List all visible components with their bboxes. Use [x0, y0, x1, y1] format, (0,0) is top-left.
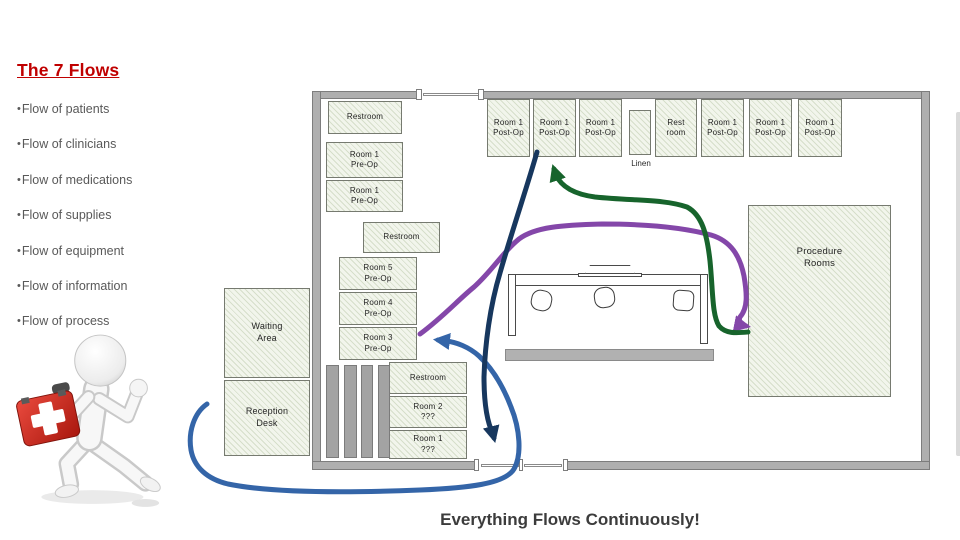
figure-shadow-small [132, 499, 159, 507]
room-room4-preop: Room 4 Pre-Op [339, 292, 417, 325]
wall-bottom-right [566, 461, 930, 470]
pillar-2 [344, 365, 357, 458]
bullet-text: Flow of process [22, 314, 110, 328]
room-room1-postop-6: Room 1 Post-Op [798, 99, 842, 157]
bullet-text: Flow of medications [22, 173, 132, 187]
bullet-marker: • [17, 315, 21, 327]
bottom-door-leaf-2 [524, 464, 562, 467]
room-label: Room 1 Post-Op [755, 118, 786, 139]
room-label: Room 4 Pre-Op [363, 298, 392, 319]
top-door-jamb-right [478, 89, 484, 100]
room-restroom-bottom: Restroom [389, 362, 467, 394]
slide-edge-strip [956, 112, 960, 456]
room-restroom-mid: Restroom [363, 222, 440, 253]
nurses-station-right-leg [700, 274, 708, 344]
room-room3-preop: Room 3 Pre-Op [339, 327, 417, 360]
room-label: Room 1 Post-Op [539, 118, 570, 139]
bullet-item-1: •Flow of clinicians [17, 137, 132, 151]
bottom-door-jamb-right [563, 459, 568, 471]
room-room1-postop-1: Room 1 Post-Op [487, 99, 530, 157]
room-restroom-top-right: Rest room [655, 99, 697, 157]
bullet-text: Flow of clinicians [22, 137, 116, 151]
room-label: Room 1 Post-Op [805, 118, 836, 139]
bullet-item-0: •Flow of patients [17, 102, 132, 116]
figure-head [75, 335, 126, 386]
room-label: Room 1 Post-Op [707, 118, 738, 139]
room-label: Room 2 ??? [413, 402, 442, 423]
room-label: Restroom [347, 112, 383, 122]
bullet-text: Flow of supplies [22, 208, 112, 222]
room-room1-preop-b: Room 1 Pre-Op [326, 180, 403, 212]
room-label: Room 5 Pre-Op [363, 263, 392, 284]
room-procedure-rooms: Procedure Rooms [748, 205, 891, 397]
wall-left [312, 91, 321, 469]
room-room1-preop-a: Room 1 Pre-Op [326, 142, 403, 178]
room-label: Waiting Area [251, 321, 282, 344]
bottom-door-jamb-left [474, 459, 479, 471]
bullet-text: Flow of information [22, 279, 128, 293]
room-label: Room 1 Post-Op [585, 118, 616, 139]
room-label: Room 1 Post-Op [493, 118, 524, 139]
monitor-icon [585, 265, 635, 274]
top-door-jamb-left [416, 89, 422, 100]
room-room1-postop-4: Room 1 Post-Op [701, 99, 744, 157]
room-room1-unknown: Room 1 ??? [389, 430, 467, 459]
wall-top [312, 91, 930, 99]
bullet-text: Flow of equipment [22, 244, 124, 258]
bottom-door-leaf-1 [481, 464, 519, 467]
room-label: Restroom [383, 232, 419, 242]
room-room1-postop-5: Room 1 Post-Op [749, 99, 792, 157]
flow-procedure-to-postop [554, 169, 748, 333]
wall-bottom-left [312, 461, 479, 470]
bullet-item-3: •Flow of supplies [17, 208, 132, 222]
chair-3 [672, 289, 694, 311]
room-room1-postop-2: Room 1 Post-Op [533, 99, 576, 157]
room-label: Procedure Rooms [797, 206, 843, 271]
room-reception-desk: Reception Desk [224, 380, 310, 456]
chair-2 [593, 286, 617, 310]
room-label: Rest room [666, 118, 685, 139]
bullet-marker: • [17, 174, 21, 186]
bullet-item-6: •Flow of process [17, 314, 132, 328]
bullet-marker: • [17, 245, 21, 257]
page-title: The 7 Flows [17, 60, 119, 81]
room-restroom-top-left: Restroom [328, 101, 402, 134]
bullet-list: •Flow of patients•Flow of clinicians•Flo… [17, 102, 132, 329]
caption: Everything Flows Continuously! [330, 510, 810, 530]
slide: The 7 Flows •Flow of patients•Flow of cl… [0, 0, 960, 540]
wall-right [921, 91, 930, 470]
bullet-item-2: •Flow of medications [17, 173, 132, 187]
bench [505, 349, 714, 361]
room-label: Restroom [410, 373, 446, 383]
bullet-item-5: •Flow of information [17, 279, 132, 293]
first-aid-kit-icon [14, 381, 81, 447]
room-label: Room 3 Pre-Op [363, 333, 392, 354]
room-room2-unknown: Room 2 ??? [389, 396, 467, 428]
room-waiting-area: Waiting Area [224, 288, 310, 378]
pillar-1 [326, 365, 339, 458]
running-medic-illustration [6, 328, 168, 510]
bullet-marker: • [17, 209, 21, 221]
bullet-marker: • [17, 103, 21, 115]
linen-label: Linen [625, 159, 657, 168]
room-room1-postop-3: Room 1 Post-Op [579, 99, 622, 157]
room-label: Room 1 ??? [413, 434, 442, 455]
bullet-marker: • [17, 280, 21, 292]
bullet-marker: • [17, 138, 21, 150]
room-label: Reception Desk [246, 406, 288, 429]
room-label: Room 1 Pre-Op [350, 186, 379, 207]
nurses-station-left-leg [508, 274, 516, 336]
pillar-4 [378, 365, 390, 458]
bullet-text: Flow of patients [22, 102, 110, 116]
chair-1 [529, 288, 554, 313]
room-label: Room 1 Pre-Op [350, 150, 379, 171]
room-linen-closet [629, 110, 651, 155]
bullet-item-4: •Flow of equipment [17, 244, 132, 258]
pillar-3 [361, 365, 373, 458]
room-room5-preop: Room 5 Pre-Op [339, 257, 417, 290]
top-door-leaf [423, 93, 479, 96]
bottom-door-jamb-mid [519, 459, 523, 471]
